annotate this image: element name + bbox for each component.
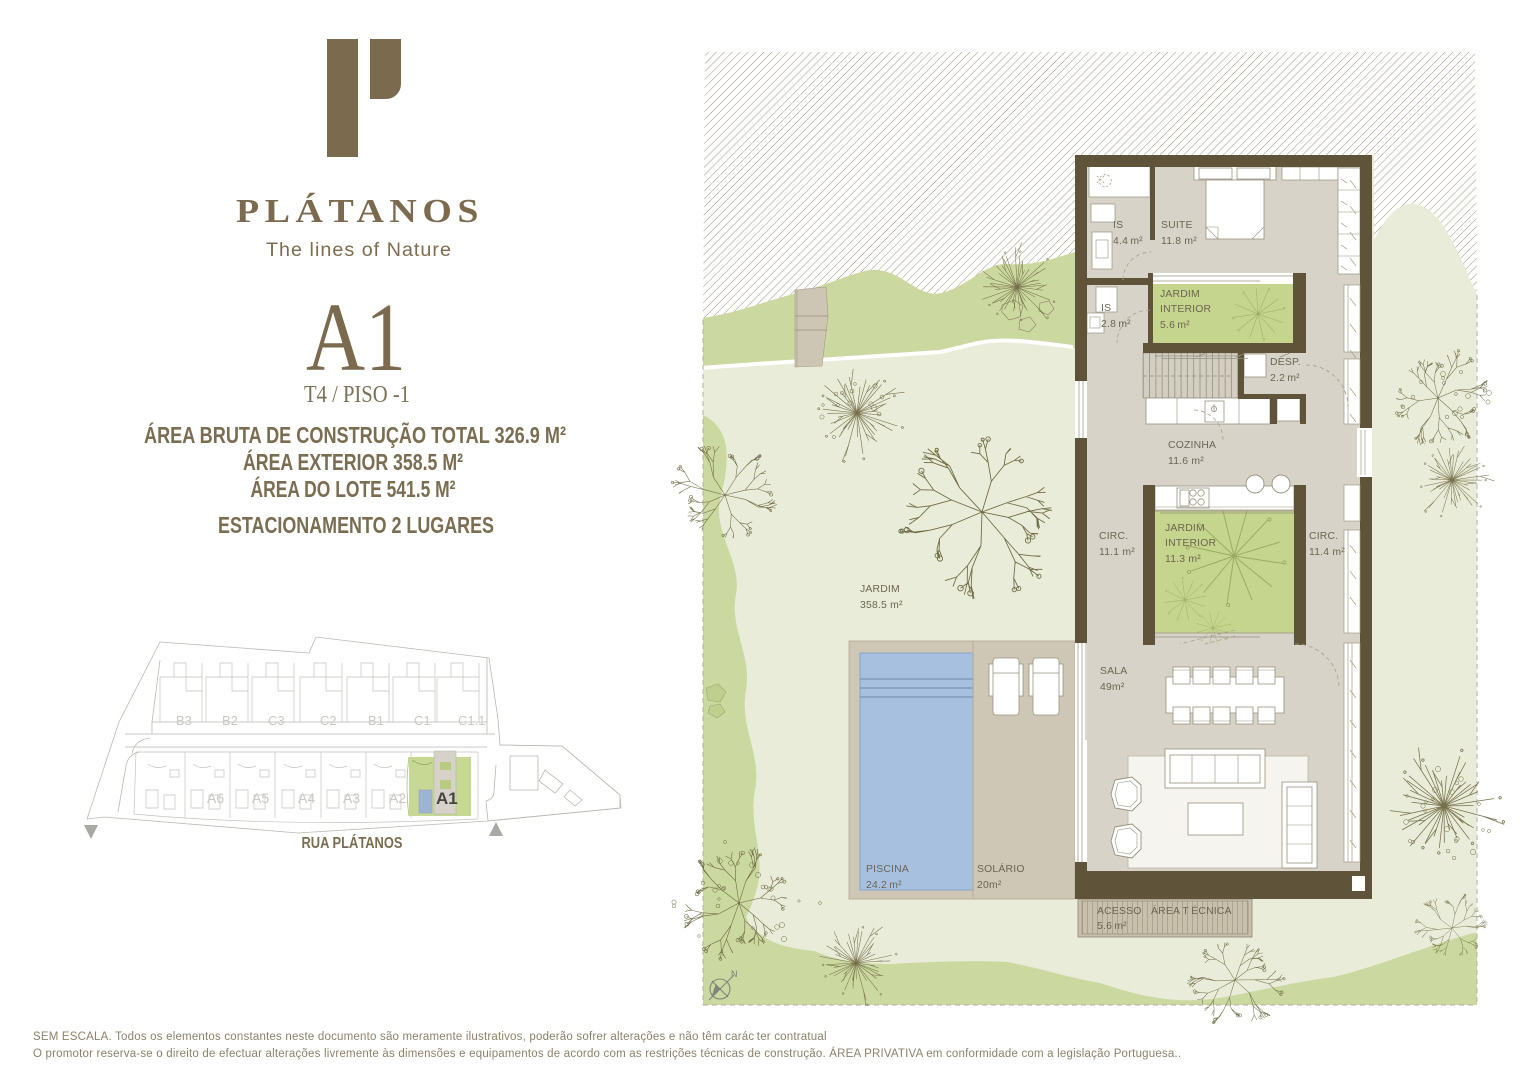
svg-text:B3: B3 [176,713,192,728]
svg-text:C2: C2 [320,713,337,728]
svg-text:JARDIM: JARDIM [1160,289,1200,300]
svg-text:C1: C1 [414,713,431,728]
svg-text:358.5 m²: 358.5 m² [860,600,903,611]
svg-text:A2: A2 [389,790,406,806]
svg-text:N: N [731,969,738,979]
svg-text:11.4 m²: 11.4 m² [1309,547,1345,558]
svg-text:O promotor reserva-se o direit: O promotor reserva-se o direito de efect… [33,1047,1181,1060]
svg-text:2.2 m²: 2.2 m² [1270,373,1300,384]
svg-text:ÁREA BRUTA DE CONSTRUÇÃO TOTAL: ÁREA BRUTA DE CONSTRUÇÃO TOTAL 326.9 M² [144,421,566,448]
svg-text:SOLÁRIO: SOLÁRIO [977,862,1025,875]
svg-text:11.1 m²: 11.1 m² [1099,547,1135,558]
svg-text:11.3 m²: 11.3 m² [1165,554,1201,565]
svg-text:SUITE: SUITE [1161,220,1193,231]
svg-text:ÁREA EXTERIOR 358.5 M²: ÁREA EXTERIOR 358.5 M² [243,448,463,475]
svg-text:20m²: 20m² [977,880,1002,891]
svg-text:2.8 m²: 2.8 m² [1101,319,1131,330]
svg-text:INTERIOR: INTERIOR [1165,538,1217,549]
svg-text:11.8 m²: 11.8 m² [1161,236,1197,247]
svg-text:ÁREA T ÉCNICA: ÁREA T ÉCNICA [1151,904,1232,917]
svg-text:PISCINA: PISCINA [866,864,909,875]
svg-text:C3: C3 [268,713,285,728]
svg-text:5.6 m²: 5.6 m² [1160,320,1190,331]
svg-text:INTERIOR: INTERIOR [1160,304,1212,315]
svg-text:5.6 m²: 5.6 m² [1097,921,1127,932]
svg-text:49m²: 49m² [1100,682,1125,693]
svg-text:The lines of Nature: The lines of Nature [266,240,452,261]
svg-text:DESP.: DESP. [1270,357,1301,368]
svg-text:B2: B2 [222,713,238,728]
svg-text:A3: A3 [343,790,360,806]
svg-text:A6: A6 [207,790,224,806]
svg-text:A1: A1 [436,789,458,808]
svg-text:A1: A1 [306,284,406,392]
svg-text:CIRC.: CIRC. [1309,531,1338,542]
svg-text:24.2 m²: 24.2 m² [866,880,902,891]
svg-text:SALA: SALA [1100,666,1127,677]
svg-text:4.4 m²: 4.4 m² [1113,236,1143,247]
svg-text:B1: B1 [368,713,384,728]
svg-text:COZINHA: COZINHA [1168,440,1216,451]
svg-text:A5: A5 [252,790,269,806]
svg-text:IS: IS [1101,303,1111,314]
svg-text:PLÁTANOS: PLÁTANOS [236,193,484,230]
svg-text:C1.1: C1.1 [458,713,485,728]
svg-text:JARDIM: JARDIM [1165,523,1205,534]
svg-text:A4: A4 [298,790,315,806]
svg-text:SEM ESCALA. Todos os elementos: SEM ESCALA. Todos os elementos constante… [33,1031,827,1043]
svg-text:CIRC.: CIRC. [1099,531,1128,542]
svg-text:ESTACIONAMENTO 2 LUGARES: ESTACIONAMENTO 2 LUGARES [218,512,494,538]
svg-text:11.6 m²: 11.6 m² [1168,456,1204,467]
svg-text:IS: IS [1113,220,1123,231]
svg-text:JARDIM: JARDIM [860,584,900,595]
svg-text:T4 / PISO -1: T4 / PISO -1 [304,382,410,408]
svg-text:RUA PLÁTANOS: RUA PLÁTANOS [302,835,403,852]
svg-text:ÁREA DO LOTE 541.5 M²: ÁREA DO LOTE 541.5 M² [251,475,456,502]
svg-text:ACESSO: ACESSO [1097,906,1142,917]
